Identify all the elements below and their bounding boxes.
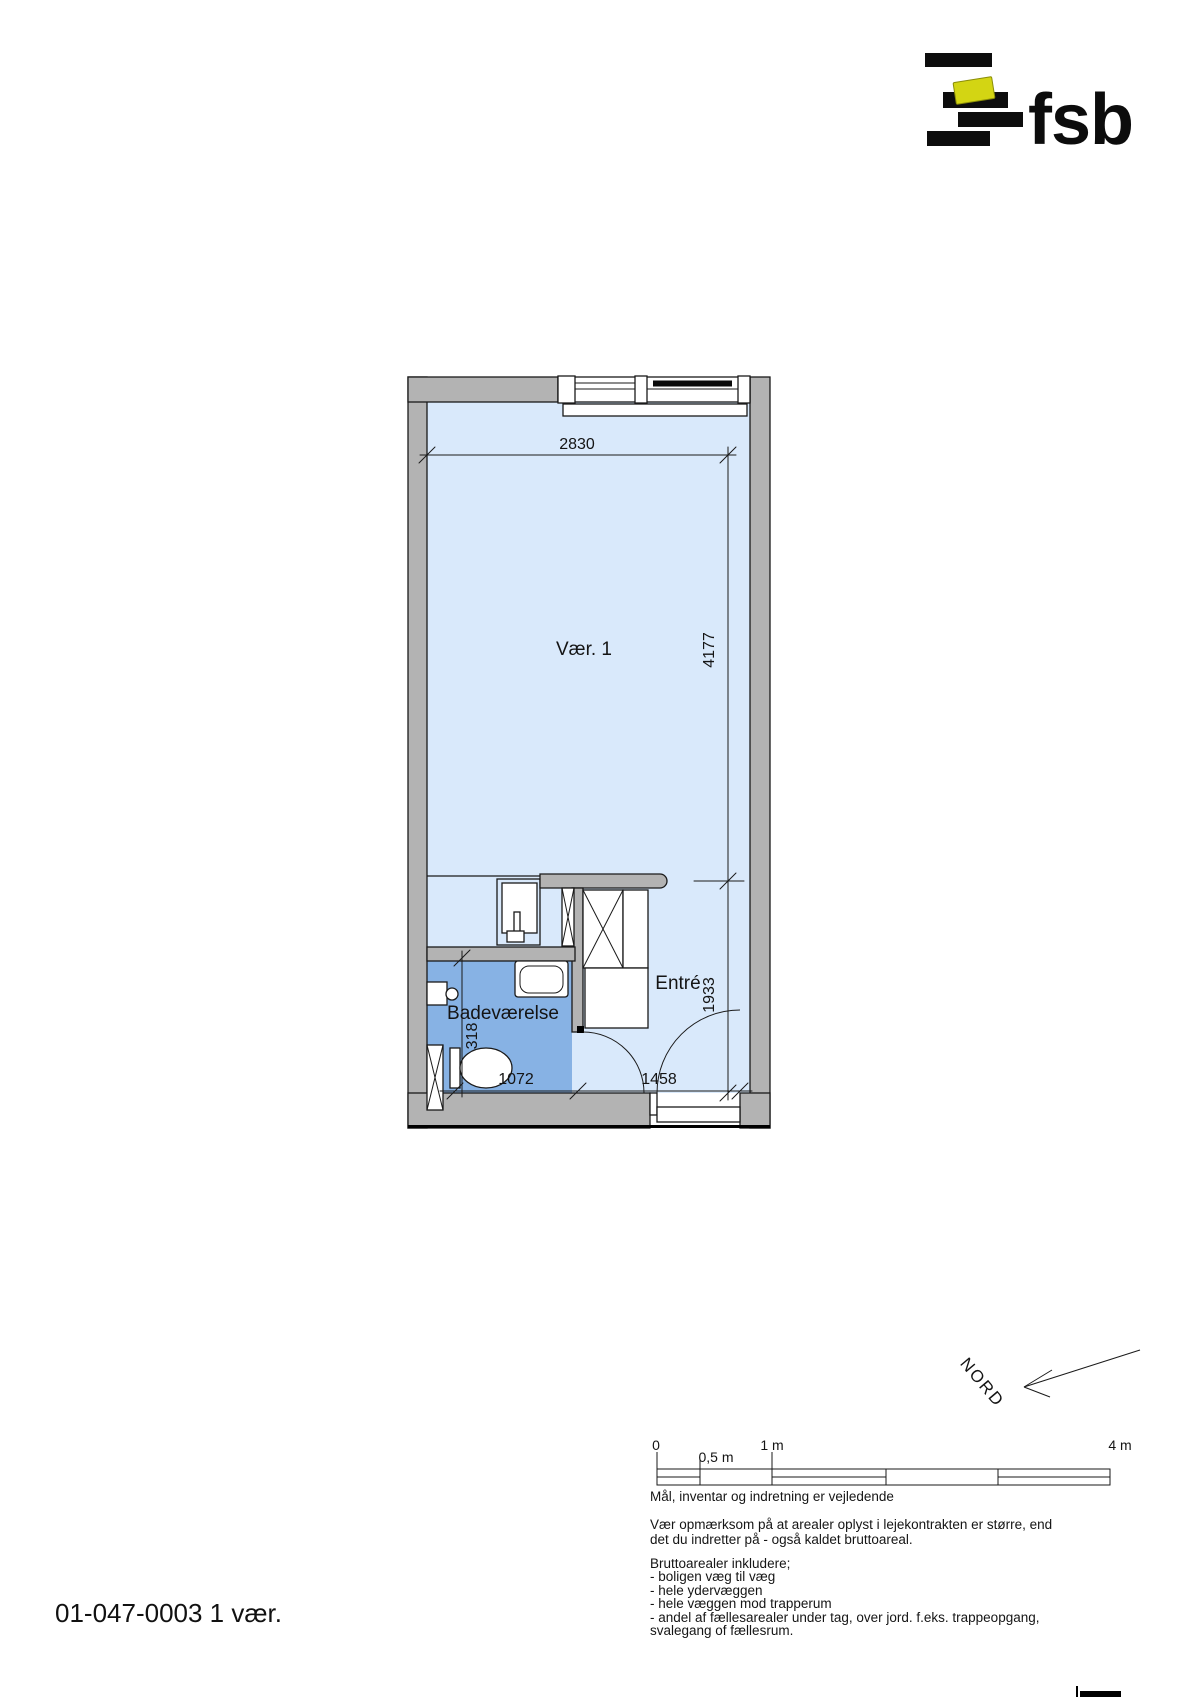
note-line: svalegang of fællesrum. — [650, 1624, 1039, 1637]
note-line: det du indretter på - også kaldet brutto… — [650, 1532, 1052, 1547]
wall-bottom-left — [408, 1093, 650, 1128]
note-line: - hele væggen mod trapperum — [650, 1597, 1039, 1610]
dim-label-2830: 2830 — [559, 436, 595, 453]
north-arrow-head — [1024, 1370, 1052, 1387]
entry-wardrobe — [585, 968, 648, 1028]
x-cabinet-large — [583, 890, 623, 968]
wall-right — [750, 377, 770, 1128]
note-bruttoareal-intro: Vær opmærksom på at arealer oplyst i lej… — [650, 1517, 1052, 1547]
dim-label-1072: 1072 — [498, 1071, 534, 1088]
wall-bottom-right — [740, 1093, 770, 1128]
bathroom-label: Badeværelse — [447, 1003, 559, 1024]
cabinet-plain — [623, 890, 648, 968]
note-line: - hele ydervæggen — [650, 1584, 1039, 1597]
washbasin-bracket — [427, 982, 447, 1005]
floorplan-page: fsb — [0, 0, 1200, 1697]
toilet-cistern — [450, 1048, 460, 1088]
entry-door-jamb — [650, 1093, 657, 1115]
entry-label: Entré — [655, 973, 700, 994]
x-cabinet-small — [562, 888, 574, 946]
frame-corner — [1076, 1686, 1078, 1697]
duct-shaft — [427, 1045, 443, 1110]
bathtub — [515, 961, 568, 997]
window-mullion — [635, 376, 647, 403]
scale-label-1: 1 m — [760, 1437, 783, 1453]
dim-label-4177: 4177 — [701, 632, 718, 668]
entry-door-leaf — [657, 1107, 740, 1122]
note-line: - boligen væg til væg — [650, 1570, 1039, 1583]
dim-label-1458: 1458 — [641, 1071, 677, 1088]
frame-corner — [1080, 1691, 1121, 1697]
window-dark-panel — [653, 381, 732, 387]
scale-label-0: 0 — [652, 1437, 660, 1453]
note-line: - andel af fællesarealer under tag, over… — [650, 1611, 1039, 1624]
scale-bar: 0 0,5 m 1 m 4 m — [652, 1437, 1132, 1485]
wall-bath-top — [427, 947, 575, 961]
window-jamb-left — [558, 376, 575, 403]
note-vejledende: Mål, inventar og indretning er vejledend… — [650, 1489, 894, 1504]
floor-plan-drawing: 2830 4177 1933 318 1072 1458 Vær. 1 Bade… — [0, 0, 1200, 1697]
room1-label: Vær. 1 — [556, 639, 612, 660]
wall-mid-chunk — [540, 874, 667, 888]
scale-label-05: 0,5 m — [698, 1449, 733, 1465]
bath-door-hinge — [577, 1026, 584, 1033]
dim-label-1933: 1933 — [701, 977, 718, 1013]
dim-label-318: 318 — [464, 1023, 481, 1050]
kitchen-faucet-base — [507, 931, 524, 942]
wall-top — [408, 377, 558, 402]
wall-left — [408, 377, 427, 1128]
north-arrow: NORD — [956, 1350, 1140, 1411]
note-line: Bruttoarealer inkludere; — [650, 1557, 1039, 1570]
north-arrow-shaft — [1024, 1350, 1140, 1387]
note-line: Vær opmærksom på at arealer oplyst i lej… — [650, 1517, 1052, 1532]
window-jamb-right — [738, 376, 750, 403]
washbasin-bowl — [446, 988, 458, 1000]
window-sill-radiator — [563, 404, 747, 416]
north-label: NORD — [956, 1354, 1008, 1411]
note-bruttoareal-list: Bruttoarealer inkludere; - boligen væg t… — [650, 1557, 1039, 1637]
scale-label-4: 4 m — [1108, 1437, 1131, 1453]
plan-id: 01-047-0003 1 vær. — [55, 1598, 282, 1629]
north-arrow-head — [1024, 1387, 1050, 1397]
